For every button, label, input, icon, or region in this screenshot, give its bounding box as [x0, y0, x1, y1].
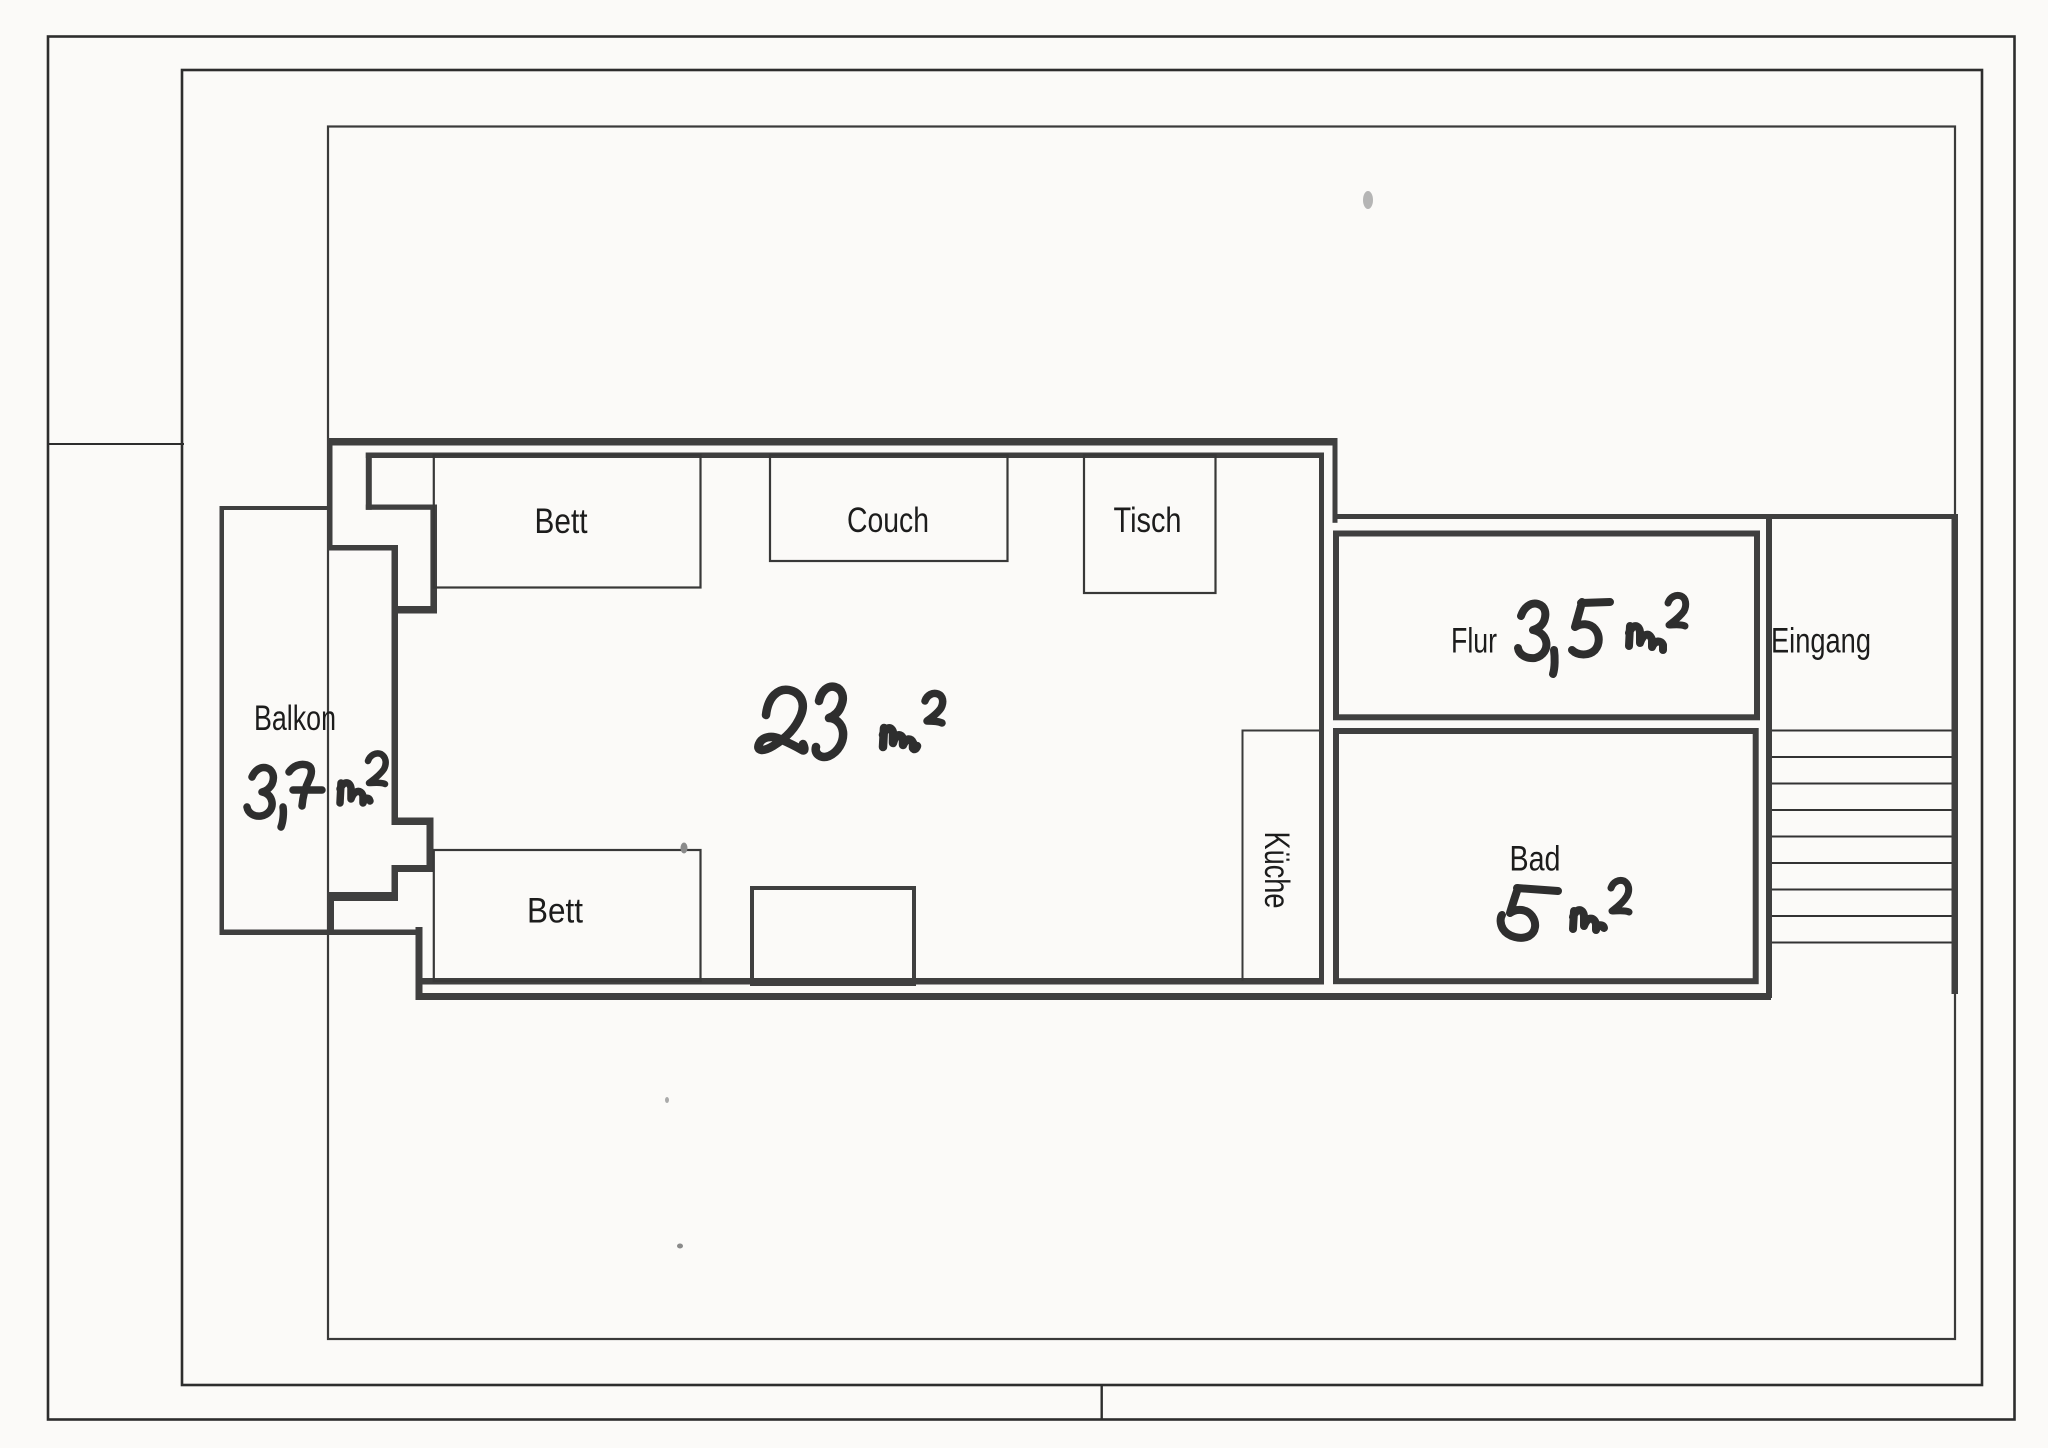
svg-text:Tisch: Tisch: [1114, 500, 1182, 540]
svg-text:Bett: Bett: [527, 891, 583, 931]
svg-text:Bett: Bett: [535, 501, 588, 541]
svg-text:Couch: Couch: [847, 500, 929, 540]
svg-text:Flur: Flur: [1451, 621, 1497, 661]
svg-text:Bad: Bad: [1510, 839, 1561, 879]
svg-text:Balkon: Balkon: [254, 698, 336, 738]
svg-text:Eingang: Eingang: [1771, 621, 1871, 661]
svg-text:Küche: Küche: [1257, 832, 1297, 909]
